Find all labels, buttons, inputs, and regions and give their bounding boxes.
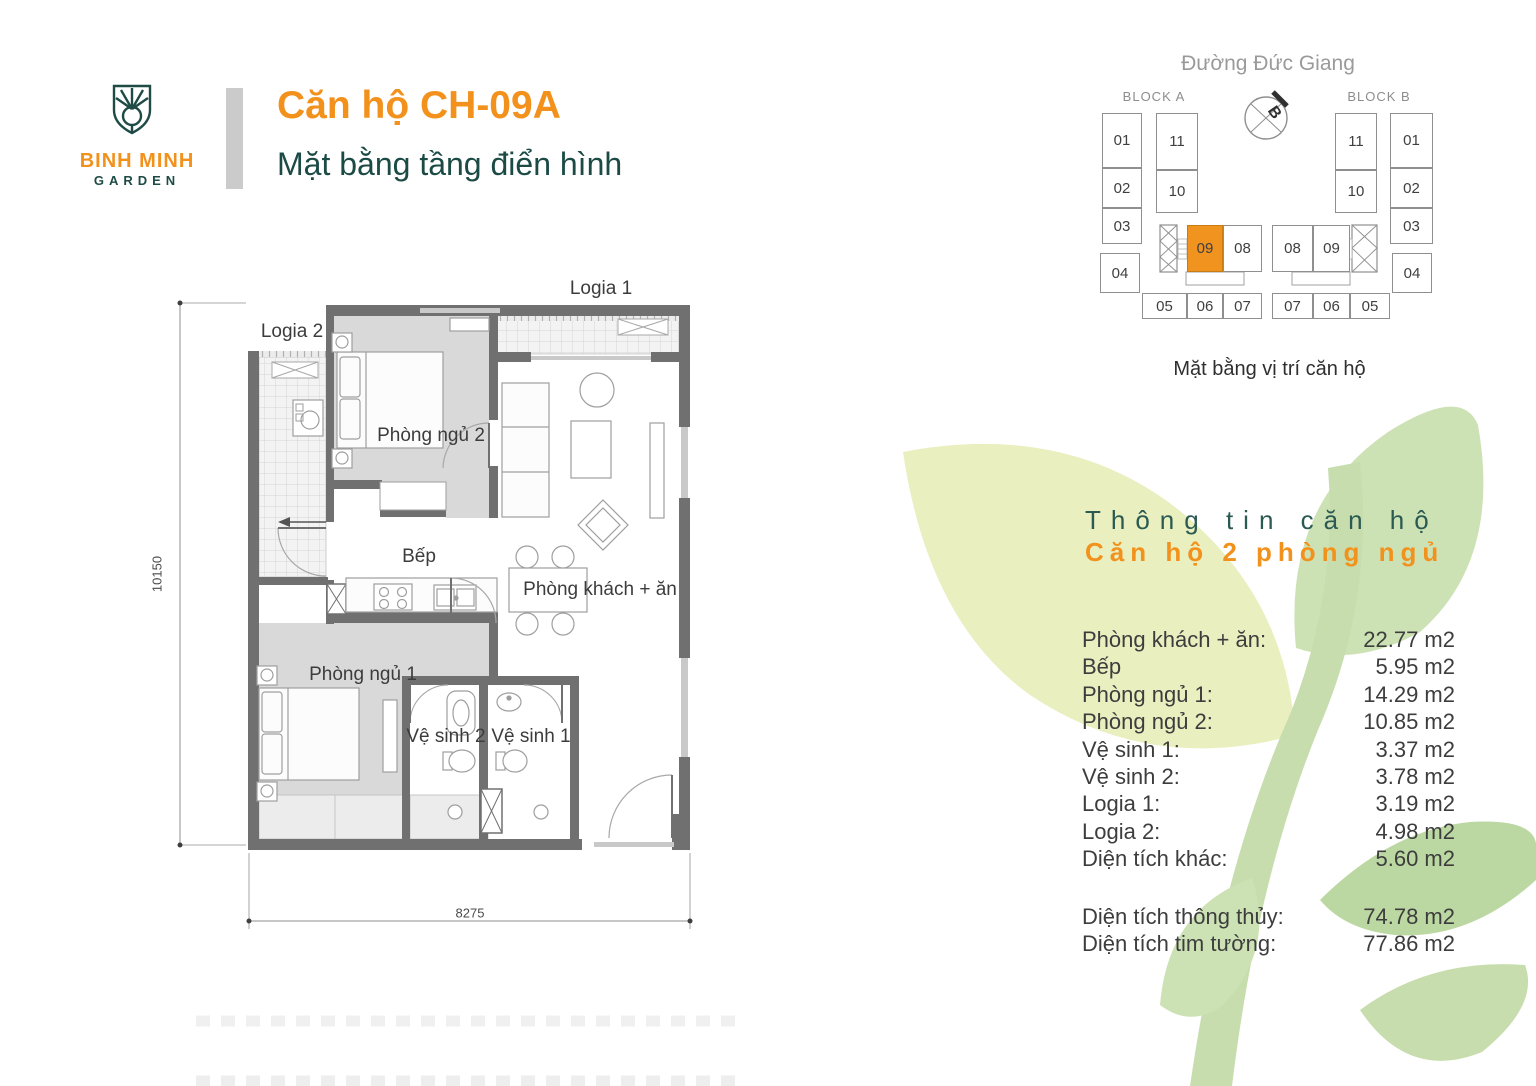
street-label: Đường Đức Giang — [1128, 52, 1408, 76]
room-label: Phòng khách + ăn — [523, 579, 677, 601]
site-map-unit: 10 — [1335, 170, 1377, 213]
area-row-label: Logia 2: — [1082, 818, 1160, 845]
site-map-unit: 08 — [1272, 225, 1313, 272]
area-row-label: Diện tích khác: — [1082, 845, 1228, 872]
area-row-label: Diện tích tim tường: — [1082, 930, 1276, 957]
area-row-value: 10.85 m2 — [1363, 708, 1455, 735]
area-table-row: Bếp5.95 m2 — [1082, 653, 1455, 680]
area-table-row: Phòng khách + ăn:22.77 m2 — [1082, 626, 1455, 653]
site-map-unit: 04 — [1100, 253, 1140, 293]
area-summary-row: Diện tích tim tường:77.86 m2 — [1082, 930, 1455, 957]
site-map-unit: 01 — [1102, 113, 1142, 168]
site-map-unit: 06 — [1187, 293, 1223, 319]
area-row-value: 22.77 m2 — [1363, 626, 1455, 653]
dimension-label: 10150 — [150, 556, 165, 592]
area-summary-row: Diện tích thông thủy:74.78 m2 — [1082, 903, 1455, 930]
area-row-value: 74.78 m2 — [1363, 903, 1455, 930]
dimension-label: 8275 — [456, 906, 485, 921]
area-table-row: Diện tích khác:5.60 m2 — [1082, 845, 1455, 872]
area-row-label: Vệ sinh 1: — [1082, 736, 1180, 763]
site-map-unit: 02 — [1102, 168, 1142, 208]
page-subtitle: Mặt bằng tầng điển hình — [277, 146, 622, 183]
site-map-unit: 06 — [1313, 293, 1350, 319]
room-label: Vệ sinh 1 — [491, 726, 570, 748]
area-row-value: 5.60 m2 — [1376, 845, 1456, 872]
area-row-label: Diện tích thông thủy: — [1082, 903, 1284, 930]
room-label: Vệ sinh 2 — [406, 726, 485, 748]
bottom-dashed-lines — [196, 1021, 745, 1081]
brand-name: BINH MINH — [64, 150, 210, 173]
site-map-unit: 08 — [1223, 225, 1262, 272]
area-row-label: Phòng khách + ăn: — [1082, 626, 1266, 653]
area-row-label: Phòng ngủ 2: — [1082, 708, 1213, 735]
area-row-label: Vệ sinh 2: — [1082, 763, 1180, 790]
block-a-label: BLOCK A — [1104, 89, 1204, 104]
site-map-unit: 05 — [1142, 293, 1187, 319]
site-map-caption: Mặt bằng vị trí căn hộ — [1107, 358, 1432, 381]
site-map-unit: 03 — [1102, 208, 1142, 244]
site-map-unit: 03 — [1390, 208, 1433, 244]
site-map-unit: 11 — [1335, 113, 1377, 170]
site-map-unit: 04 — [1392, 253, 1432, 293]
site-map-unit-highlighted: 09 — [1187, 225, 1223, 272]
area-row-value: 4.98 m2 — [1376, 818, 1456, 845]
floor-plan-drawing — [178, 301, 693, 930]
page-title: Căn hộ CH-09A — [277, 84, 561, 128]
site-map-unit: 02 — [1390, 168, 1433, 208]
room-label: Phòng ngủ 1 — [309, 664, 417, 686]
area-row-value: 3.37 m2 — [1376, 736, 1456, 763]
header-divider-bar — [226, 88, 243, 189]
area-row-label: Bếp — [1082, 653, 1121, 680]
area-row-label: Logia 1: — [1082, 790, 1160, 817]
site-map-unit: 09 — [1313, 225, 1350, 272]
area-row-value: 3.19 m2 — [1376, 790, 1456, 817]
room-label: Bếp — [402, 546, 436, 568]
area-row-value: 3.78 m2 — [1376, 763, 1456, 790]
area-summary-table: Diện tích thông thủy:74.78 m2Diện tích t… — [1082, 903, 1455, 958]
area-table-row: Phòng ngủ 1:14.29 m2 — [1082, 681, 1455, 708]
area-table-row: Logia 1:3.19 m2 — [1082, 790, 1455, 817]
area-row-value: 14.29 m2 — [1363, 681, 1455, 708]
site-map-unit: 07 — [1223, 293, 1262, 319]
area-table-row: Logia 2:4.98 m2 — [1082, 818, 1455, 845]
area-table-row: Phòng ngủ 2:10.85 m2 — [1082, 708, 1455, 735]
room-label: Logia 2 — [261, 321, 323, 343]
area-table-row: Vệ sinh 2:3.78 m2 — [1082, 763, 1455, 790]
site-map-unit: 10 — [1156, 170, 1198, 213]
area-row-value: 5.95 m2 — [1376, 653, 1456, 680]
site-map-unit: 07 — [1272, 293, 1313, 319]
site-map-unit: 05 — [1350, 293, 1390, 319]
site-map-unit: 11 — [1156, 113, 1198, 170]
block-b-label: BLOCK B — [1329, 89, 1429, 104]
brand-subname: GARDEN — [64, 173, 210, 188]
area-row-value: 77.86 m2 — [1363, 930, 1455, 957]
site-map-unit: 01 — [1390, 113, 1433, 168]
room-label: Phòng ngủ 2 — [377, 425, 485, 447]
area-row-label: Phòng ngủ 1: — [1082, 681, 1213, 708]
room-label: Logia 1 — [570, 278, 632, 300]
info-subheading: Căn hộ 2 phòng ngủ — [1085, 537, 1444, 568]
area-table: Phòng khách + ăn:22.77 m2Bếp5.95 m2Phòng… — [1082, 626, 1455, 873]
area-table-row: Vệ sinh 1:3.37 m2 — [1082, 736, 1455, 763]
floorplan-sheet: BINH MINH GARDEN Căn hộ CH-09A Mặt bằng … — [0, 0, 1536, 1086]
brand-logo-tree-icon — [110, 84, 154, 136]
info-heading: Thông tin căn hộ — [1085, 505, 1439, 536]
